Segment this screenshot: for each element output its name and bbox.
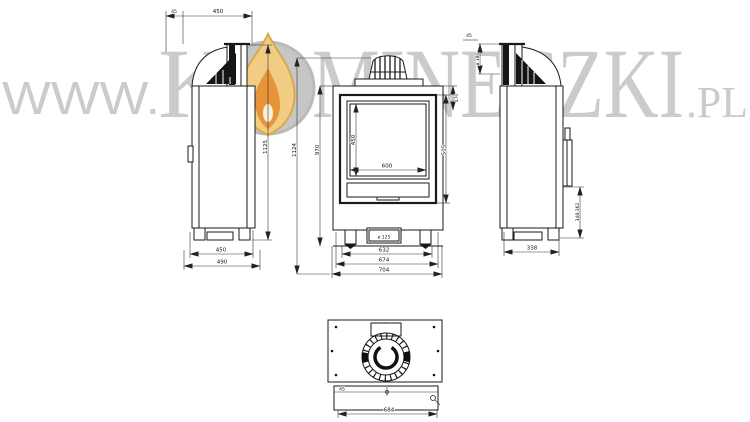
dim-label-glass-width: 600 [382, 164, 393, 170]
dim-label-left-top-width: 450 [213, 9, 224, 15]
dim-label-right-side: 348-362 [575, 202, 581, 221]
drawing-canvas: WWW. K MINECZKI .PL 45 450 [0, 0, 750, 422]
right-foot [502, 228, 513, 240]
dim-label-air-inlet: ø 125 [378, 235, 391, 241]
bottom-front-strip [334, 386, 438, 410]
right-flue-collar-fill [503, 45, 509, 85]
left-body [192, 86, 255, 228]
left-latch [188, 146, 193, 162]
dim-label-left-base-inner: 450 [216, 248, 227, 254]
dim-label-flue-diameter: ø 180 [475, 52, 481, 65]
right-handle-nub [565, 128, 570, 140]
bottom-view: 45 684 [328, 320, 442, 418]
watermark-suffix: .PL [686, 78, 748, 127]
front-leg [420, 230, 431, 244]
left-foot [194, 228, 205, 240]
right-body [500, 86, 563, 228]
right-foot [548, 228, 559, 240]
technical-drawing-page: WWW. K MINECZKI .PL 45 450 [0, 0, 750, 422]
front-leg [345, 230, 356, 244]
dim-label-top-right: 470 [454, 94, 460, 103]
left-foot [239, 228, 250, 240]
dim-label-bottom-width: 684 [384, 408, 395, 414]
watermark-prefix: WWW. [2, 72, 160, 124]
dim-label-strip: 45 [339, 387, 345, 393]
right-plinth [514, 232, 542, 240]
bottom-duct [371, 323, 401, 336]
dim-label-body-height: 970 [315, 144, 321, 155]
dim-label-right-base: 338 [527, 246, 538, 252]
dim-label-left-height: 1125 [263, 140, 269, 154]
dim-label-total-height: 1124 [292, 143, 298, 157]
dim-label-left-base-outer: 490 [217, 260, 228, 266]
left-plinth [207, 232, 233, 240]
dim-label-left-top-offset: 45 [171, 9, 177, 15]
dim-label-width-inner: 632 [379, 248, 390, 254]
dim-label-glass-height: 450 [351, 134, 357, 145]
left-side-view [188, 44, 255, 240]
dim-label-door-height: 515 [442, 144, 448, 155]
dim-label-width-mid: 674 [379, 258, 390, 264]
front-flange [355, 79, 423, 86]
dim-label-width-outer: 704 [379, 268, 390, 274]
dim-label-right-top: 45 [466, 33, 472, 39]
